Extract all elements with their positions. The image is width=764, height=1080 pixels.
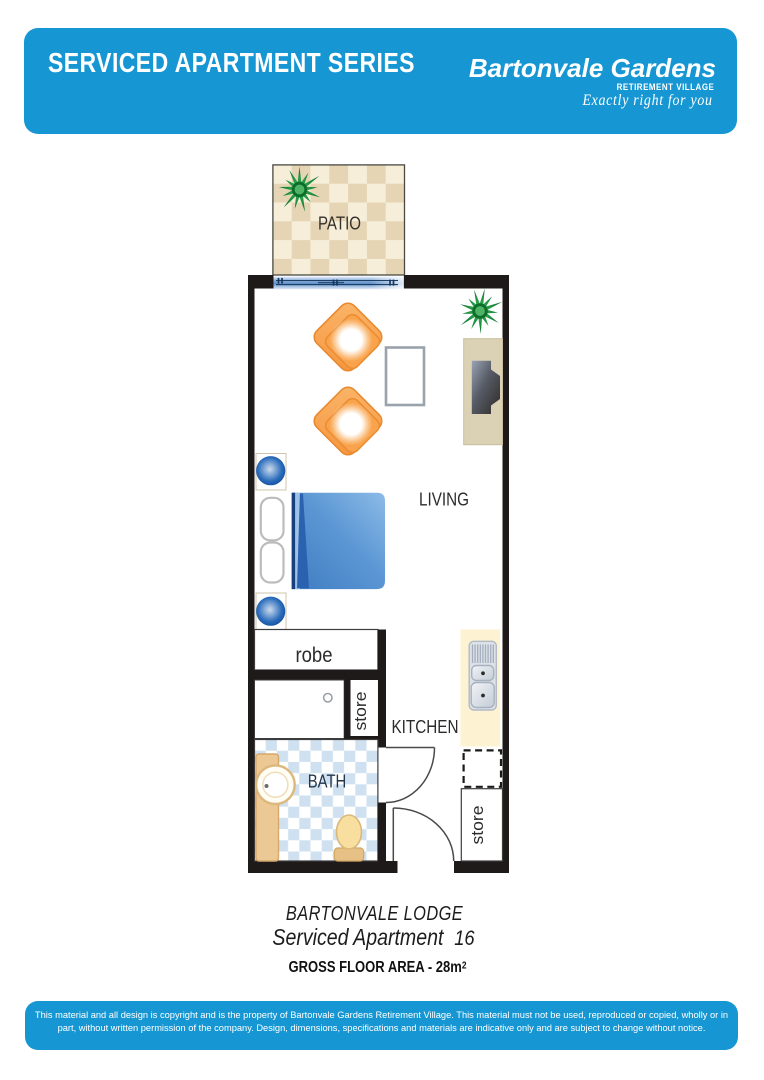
svg-text:store: store	[469, 806, 487, 845]
svg-text:robe: robe	[296, 644, 333, 667]
svg-text:PATIO: PATIO	[318, 214, 361, 234]
svg-text:LIVING: LIVING	[419, 490, 469, 510]
svg-text:store: store	[352, 692, 370, 731]
svg-text:BATH: BATH	[308, 772, 347, 792]
svg-text:KITCHEN: KITCHEN	[392, 717, 459, 737]
